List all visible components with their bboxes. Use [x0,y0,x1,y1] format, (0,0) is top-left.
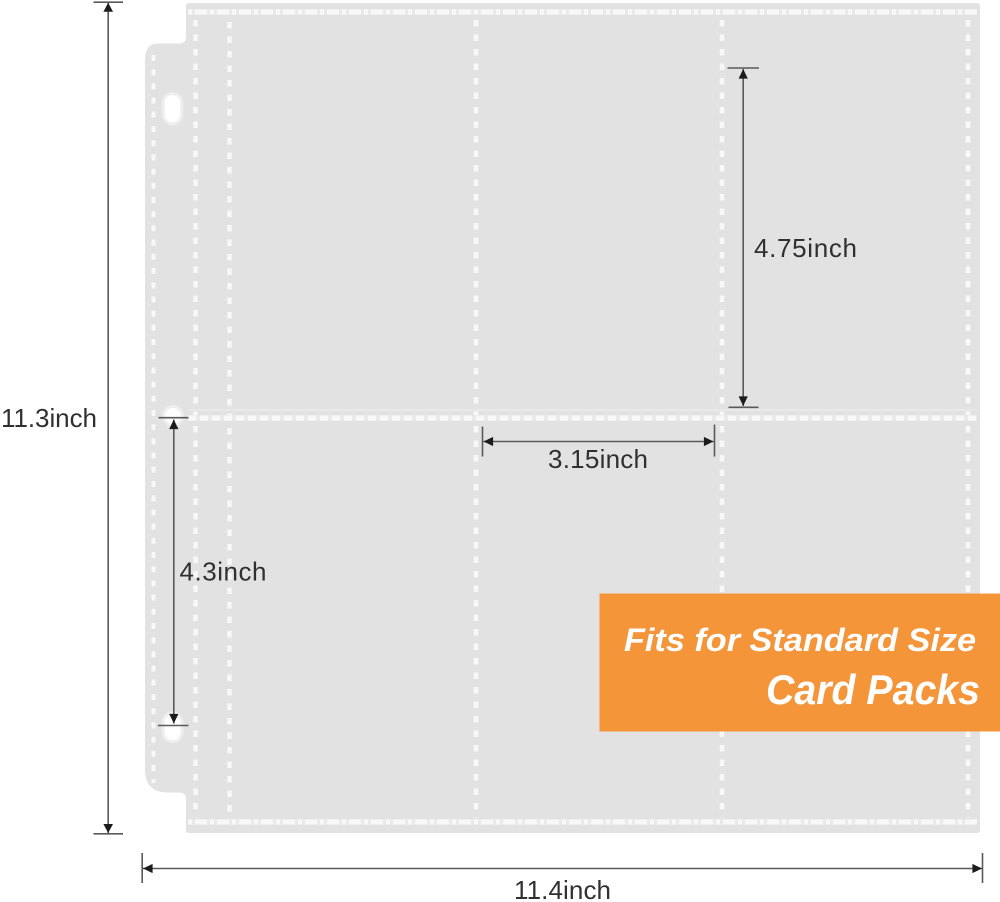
svg-text:11.4inch: 11.4inch [514,875,611,902]
svg-text:11.3inch: 11.3inch [1,403,97,433]
svg-text:4.3inch: 4.3inch [180,557,267,587]
svg-text:Card Packs: Card Packs [766,666,980,713]
svg-text:3.15inch: 3.15inch [548,444,648,474]
svg-text:4.75inch: 4.75inch [754,233,857,263]
svg-text:Fits for Standard Size: Fits for Standard Size [624,622,976,658]
